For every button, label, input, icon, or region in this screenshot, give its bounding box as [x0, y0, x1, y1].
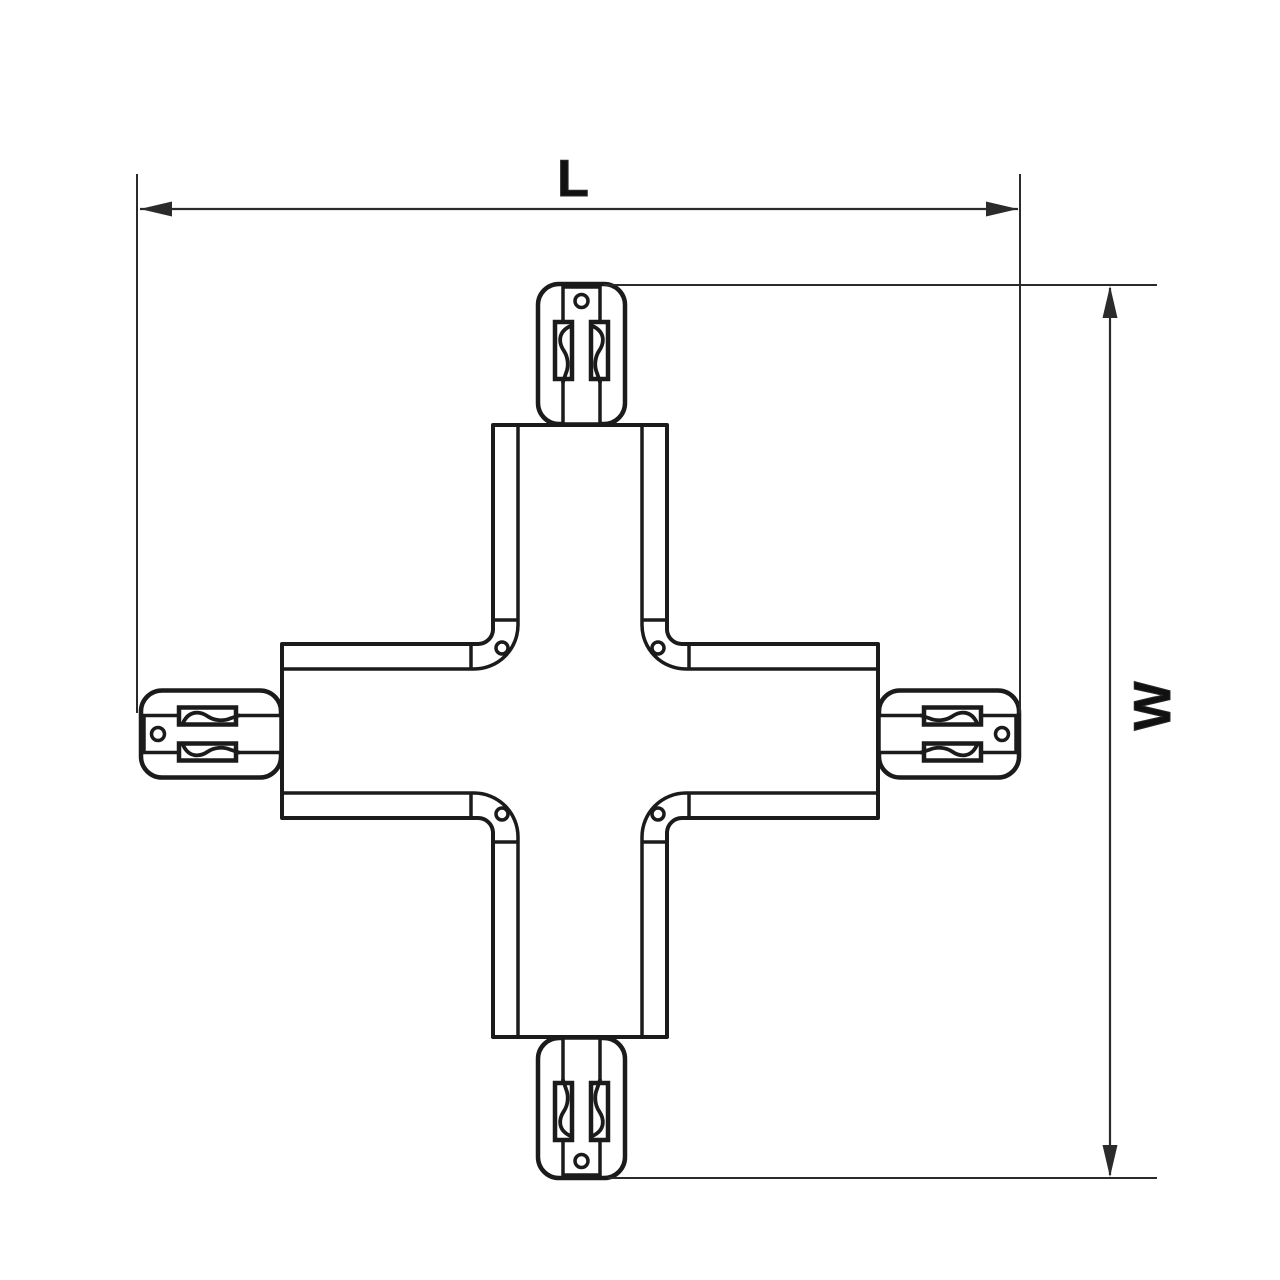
connector-top: [538, 284, 625, 424]
arrowhead-left-icon: [140, 202, 172, 217]
connector-right: [879, 691, 1019, 778]
corner-detail-top-right: [642, 425, 878, 669]
corner-detail-bottom-left: [282, 793, 518, 1037]
width-label: W: [1124, 681, 1182, 731]
corner-screw-hole: [652, 808, 664, 820]
arrowhead-right-icon: [986, 202, 1018, 217]
corner-detail-top-left: [282, 425, 518, 669]
arrowhead-up-icon: [1103, 286, 1118, 318]
length-label: L: [557, 150, 589, 208]
corner-screw-hole: [496, 642, 508, 654]
arrowhead-down-icon: [1103, 1145, 1118, 1177]
corner-screw-hole: [496, 808, 508, 820]
drawing-page: L W: [0, 0, 1280, 1280]
technical-drawing-canvas: L W: [0, 0, 1280, 1280]
corner-detail-bottom-right: [642, 793, 878, 1037]
connector-left: [141, 691, 281, 778]
cross-outer-contour: [282, 425, 878, 1037]
cross-body: [282, 425, 878, 1037]
connector-bottom: [538, 1038, 625, 1178]
corner-screw-hole: [652, 642, 664, 654]
